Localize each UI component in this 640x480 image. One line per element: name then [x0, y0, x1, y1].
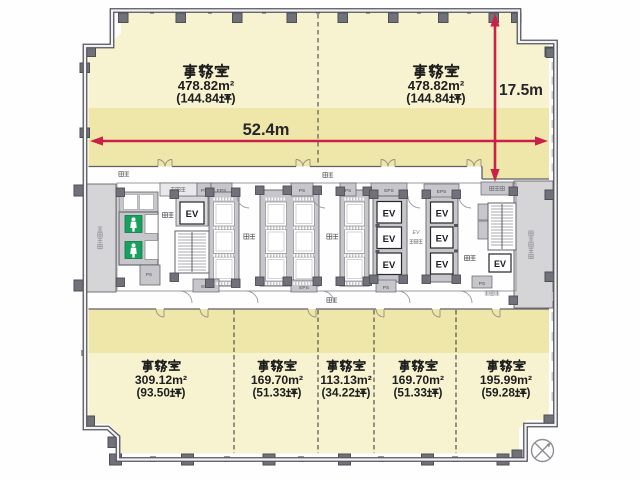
svg-text:PS: PS	[383, 285, 389, 291]
svg-text:(93.50: (93.50	[136, 386, 170, 400]
svg-text:): )	[461, 92, 465, 106]
svg-text:): )	[298, 386, 302, 400]
svg-text:EV: EV	[413, 230, 420, 236]
svg-text:(51.33: (51.33	[252, 386, 286, 400]
svg-text:EV: EV	[436, 260, 449, 271]
svg-text:52.4m: 52.4m	[243, 121, 290, 139]
svg-text:EPS: EPS	[384, 188, 394, 194]
svg-text:): )	[231, 92, 235, 106]
svg-text:(144.84: (144.84	[406, 92, 449, 106]
svg-text:): )	[367, 386, 371, 400]
svg-text:PS: PS	[146, 272, 152, 277]
svg-text:PS: PS	[299, 188, 305, 194]
svg-text:): )	[527, 386, 531, 400]
svg-text:(51.33: (51.33	[393, 386, 427, 400]
svg-text:EV: EV	[383, 234, 396, 245]
svg-text:(59.28: (59.28	[481, 386, 515, 400]
svg-text:17.5m: 17.5m	[499, 82, 543, 99]
svg-text:EV: EV	[383, 209, 396, 220]
svg-text:PS: PS	[479, 281, 485, 287]
svg-text:EPS: EPS	[299, 285, 309, 291]
svg-text:(144.84: (144.84	[176, 92, 219, 106]
svg-text:EPS: EPS	[437, 189, 447, 195]
svg-text:(34.22: (34.22	[321, 386, 355, 400]
svg-text:): )	[439, 386, 443, 400]
svg-text:EV: EV	[494, 259, 506, 269]
svg-text:): )	[182, 386, 186, 400]
svg-text:EV: EV	[383, 260, 396, 271]
svg-text:EV: EV	[436, 209, 449, 220]
svg-text:EV: EV	[186, 209, 199, 220]
svg-text:EV: EV	[436, 234, 449, 245]
svg-text:PS: PS	[345, 188, 351, 194]
